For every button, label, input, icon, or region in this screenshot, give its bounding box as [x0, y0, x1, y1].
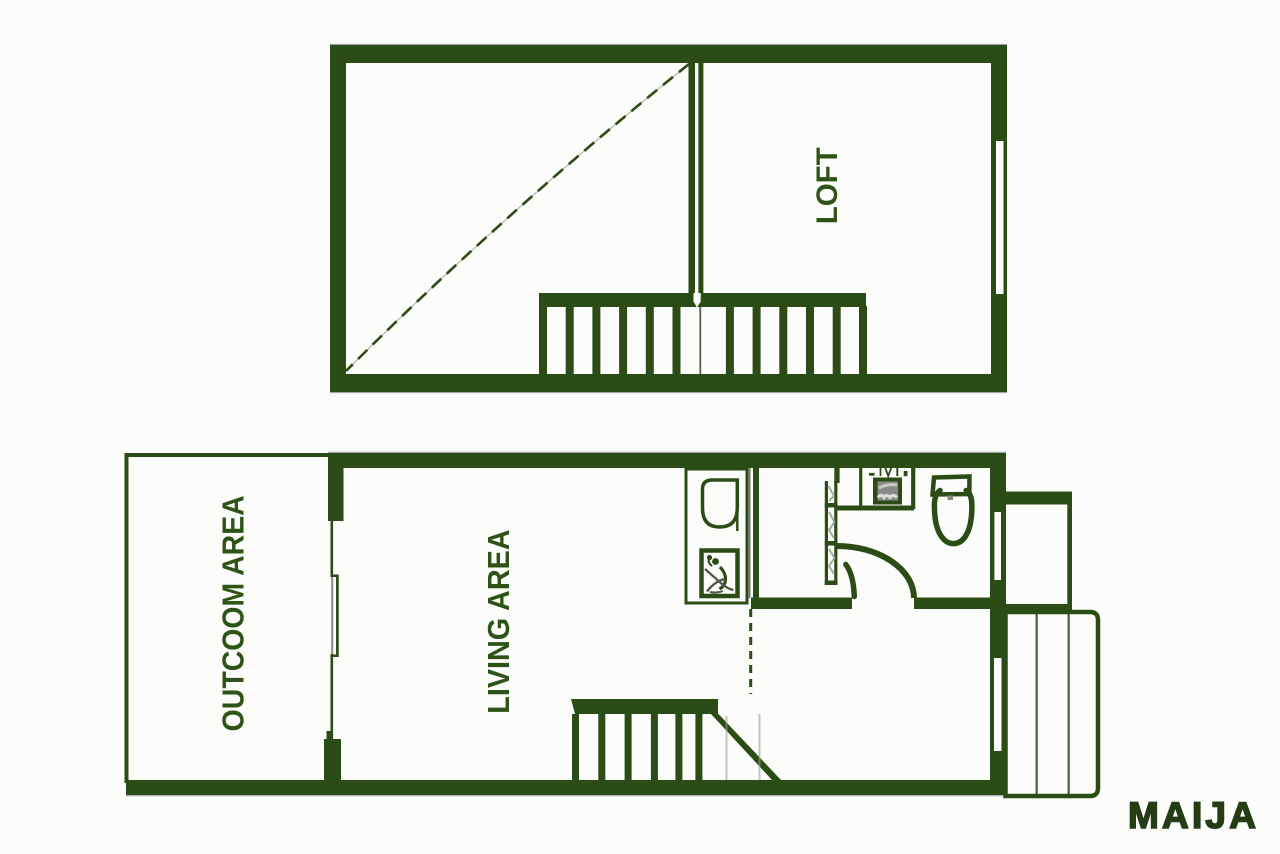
- svg-text:LOFT: LOFT: [811, 147, 844, 224]
- svg-text:MAIJA: MAIJA: [1128, 795, 1259, 836]
- svg-text:LIVING AREA: LIVING AREA: [482, 529, 516, 713]
- svg-text:OUTCOOM AREA: OUTCOOM AREA: [216, 495, 250, 731]
